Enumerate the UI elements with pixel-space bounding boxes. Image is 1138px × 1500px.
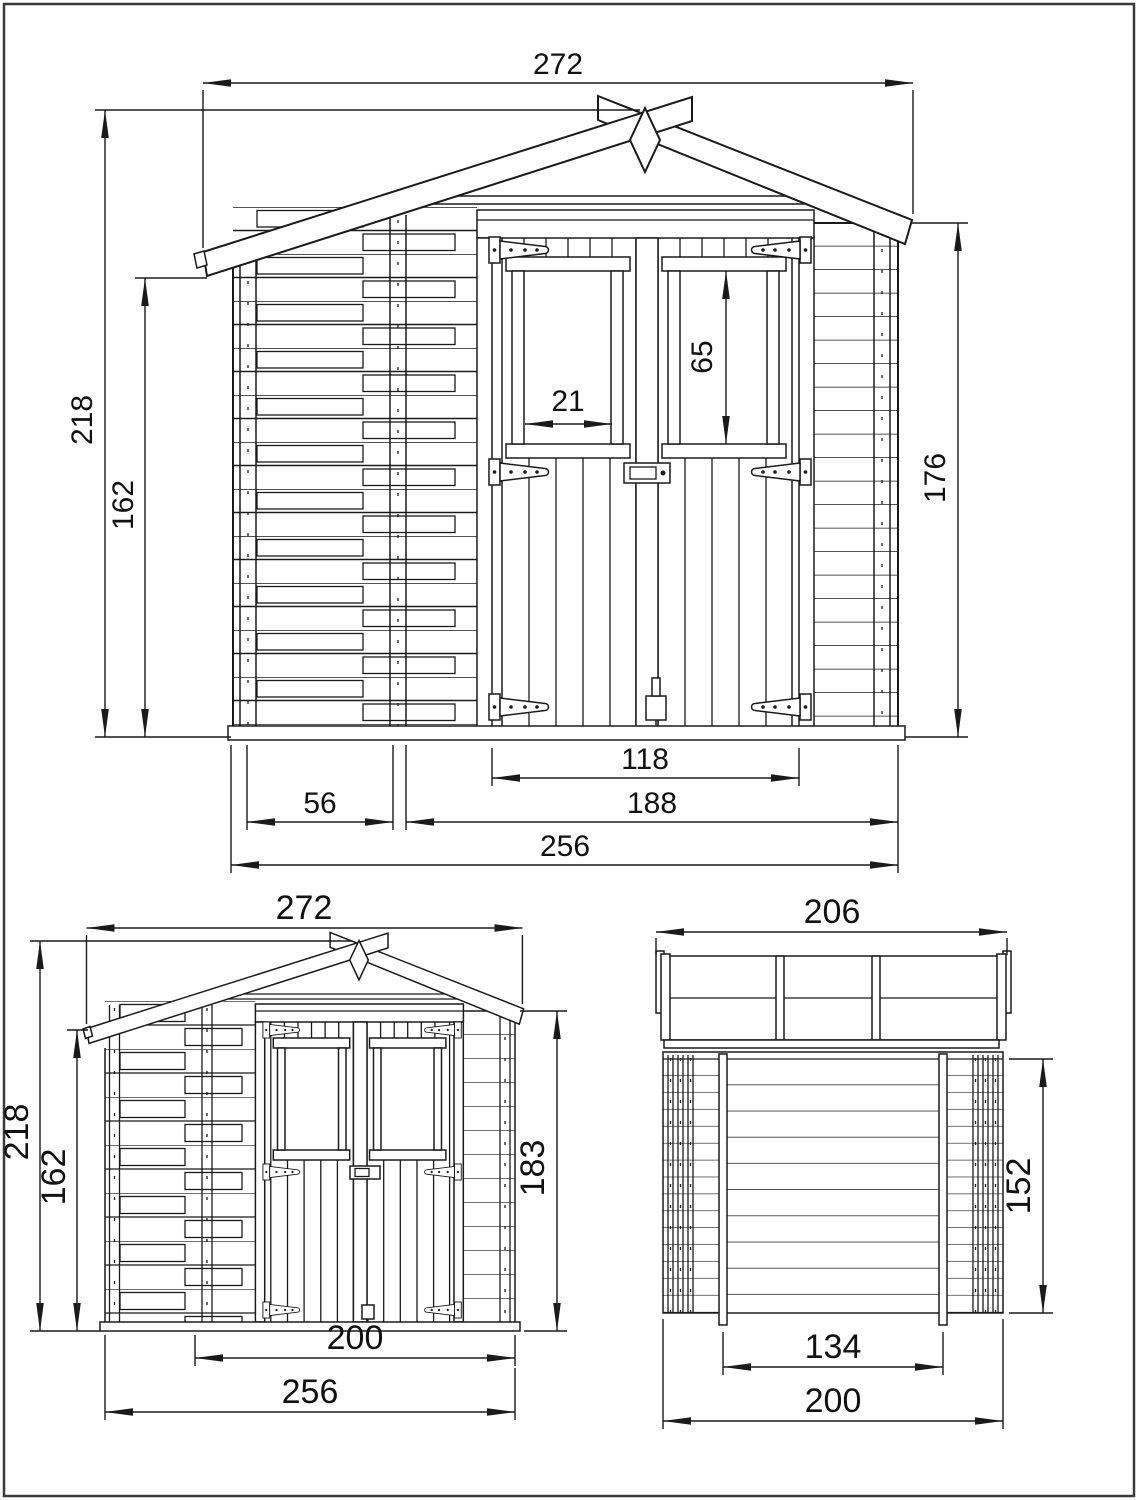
left-door-window [506, 257, 630, 458]
dim-label-roof-width: 272 [276, 889, 333, 927]
right-door-planks [685, 458, 766, 728]
rear-wall [663, 1052, 1003, 1325]
dim-label-overall-height: 218 [66, 395, 99, 445]
dim-label-window-glass-width: 21 [551, 385, 584, 418]
front-view: 272 218 162 176 21 [66, 48, 968, 873]
dim-left-wall-section: 56 [247, 745, 393, 830]
double-door [255, 1022, 463, 1329]
roof-mullion [872, 956, 880, 1040]
dim-total-width: 256 [105, 1335, 515, 1420]
dim-label-wall-height: 152 [1000, 1158, 1038, 1215]
dim-label-total-width: 200 [805, 1382, 862, 1420]
bargeboard-end-cap [194, 251, 207, 268]
dim-eaves-height: 183 [514, 1011, 567, 1331]
bargeboard-end-cap [83, 1027, 93, 1039]
dim-label-side-wall-height: 162 [35, 1149, 73, 1206]
left-door-planks [529, 458, 610, 728]
rear-view: 206 152 134 200 [656, 893, 1053, 1429]
roof-end-cap [661, 954, 670, 1040]
dim-label-inner-width: 134 [805, 1328, 862, 1366]
double-door [477, 237, 814, 736]
dim-inner-width: 134 [723, 1328, 943, 1375]
left-wall [233, 207, 477, 728]
left-door-window [273, 1038, 349, 1160]
dim-label-front-section-width: 188 [627, 787, 677, 820]
dim-label-roof-width: 272 [533, 48, 583, 81]
dim-label-total-width: 256 [540, 830, 590, 863]
dim-label-total-width: 256 [282, 1373, 339, 1411]
wall-post [719, 1054, 727, 1325]
shed-technical-drawing: 272 218 162 176 21 [0, 0, 1138, 1500]
dim-window-glass-height: 65 [686, 271, 726, 444]
right-wall [463, 1011, 515, 1322]
dim-label-door-section-width: 200 [327, 1319, 384, 1357]
dim-label-eaves-height: 183 [514, 1140, 552, 1197]
door-latch [624, 463, 670, 483]
dim-door-width: 118 [492, 743, 799, 786]
dim-side-wall-height: 162 [35, 1030, 88, 1331]
door-header [477, 210, 814, 238]
floor-base [228, 726, 905, 740]
dim-window-glass-width: 21 [525, 385, 612, 424]
dim-label-roof-width: 206 [804, 893, 861, 931]
dim-label-door-width: 118 [621, 743, 669, 776]
dim-label-overall-height: 218 [0, 1104, 36, 1161]
roof-mullion [776, 956, 784, 1040]
dim-side-wall-height: 162 [107, 278, 207, 737]
dim-roof-width: 206 [656, 893, 1007, 955]
floor-base [100, 1322, 520, 1331]
drawing-canvas: 272 218 162 176 21 [0, 0, 1138, 1500]
wall-post [939, 1054, 947, 1325]
roof-fascia [664, 1040, 999, 1048]
roof-end-cap [997, 954, 1006, 1040]
dim-wall-height: 152 [1000, 1059, 1053, 1313]
dim-label-side-wall-height: 162 [107, 480, 140, 530]
dim-label-front-wall-height: 176 [919, 453, 952, 503]
dim-label-left-wall-section: 56 [303, 787, 336, 820]
right-wall [814, 223, 898, 728]
left-wall [105, 1001, 255, 1322]
right-door-window [662, 257, 786, 458]
right-door-window [370, 1038, 446, 1160]
door-header [255, 1004, 463, 1022]
front-view-small: 272 218 162 183 200 [0, 889, 567, 1420]
roof-slab [656, 951, 1011, 1048]
dim-label-window-glass-height: 65 [686, 340, 719, 373]
door-latch [350, 1166, 380, 1179]
dim-front-wall-height: 176 [905, 223, 968, 737]
